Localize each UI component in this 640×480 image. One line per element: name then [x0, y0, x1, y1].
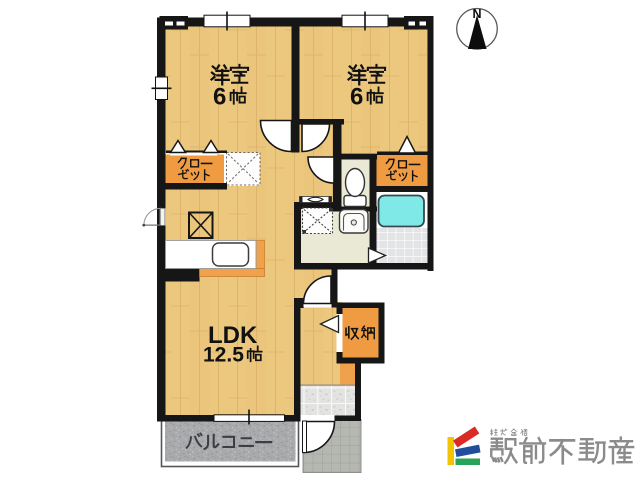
- svg-text:6: 6: [350, 83, 363, 110]
- svg-text:6: 6: [213, 83, 226, 110]
- svg-text:12.5: 12.5: [203, 344, 244, 367]
- svg-text:N: N: [472, 7, 481, 21]
